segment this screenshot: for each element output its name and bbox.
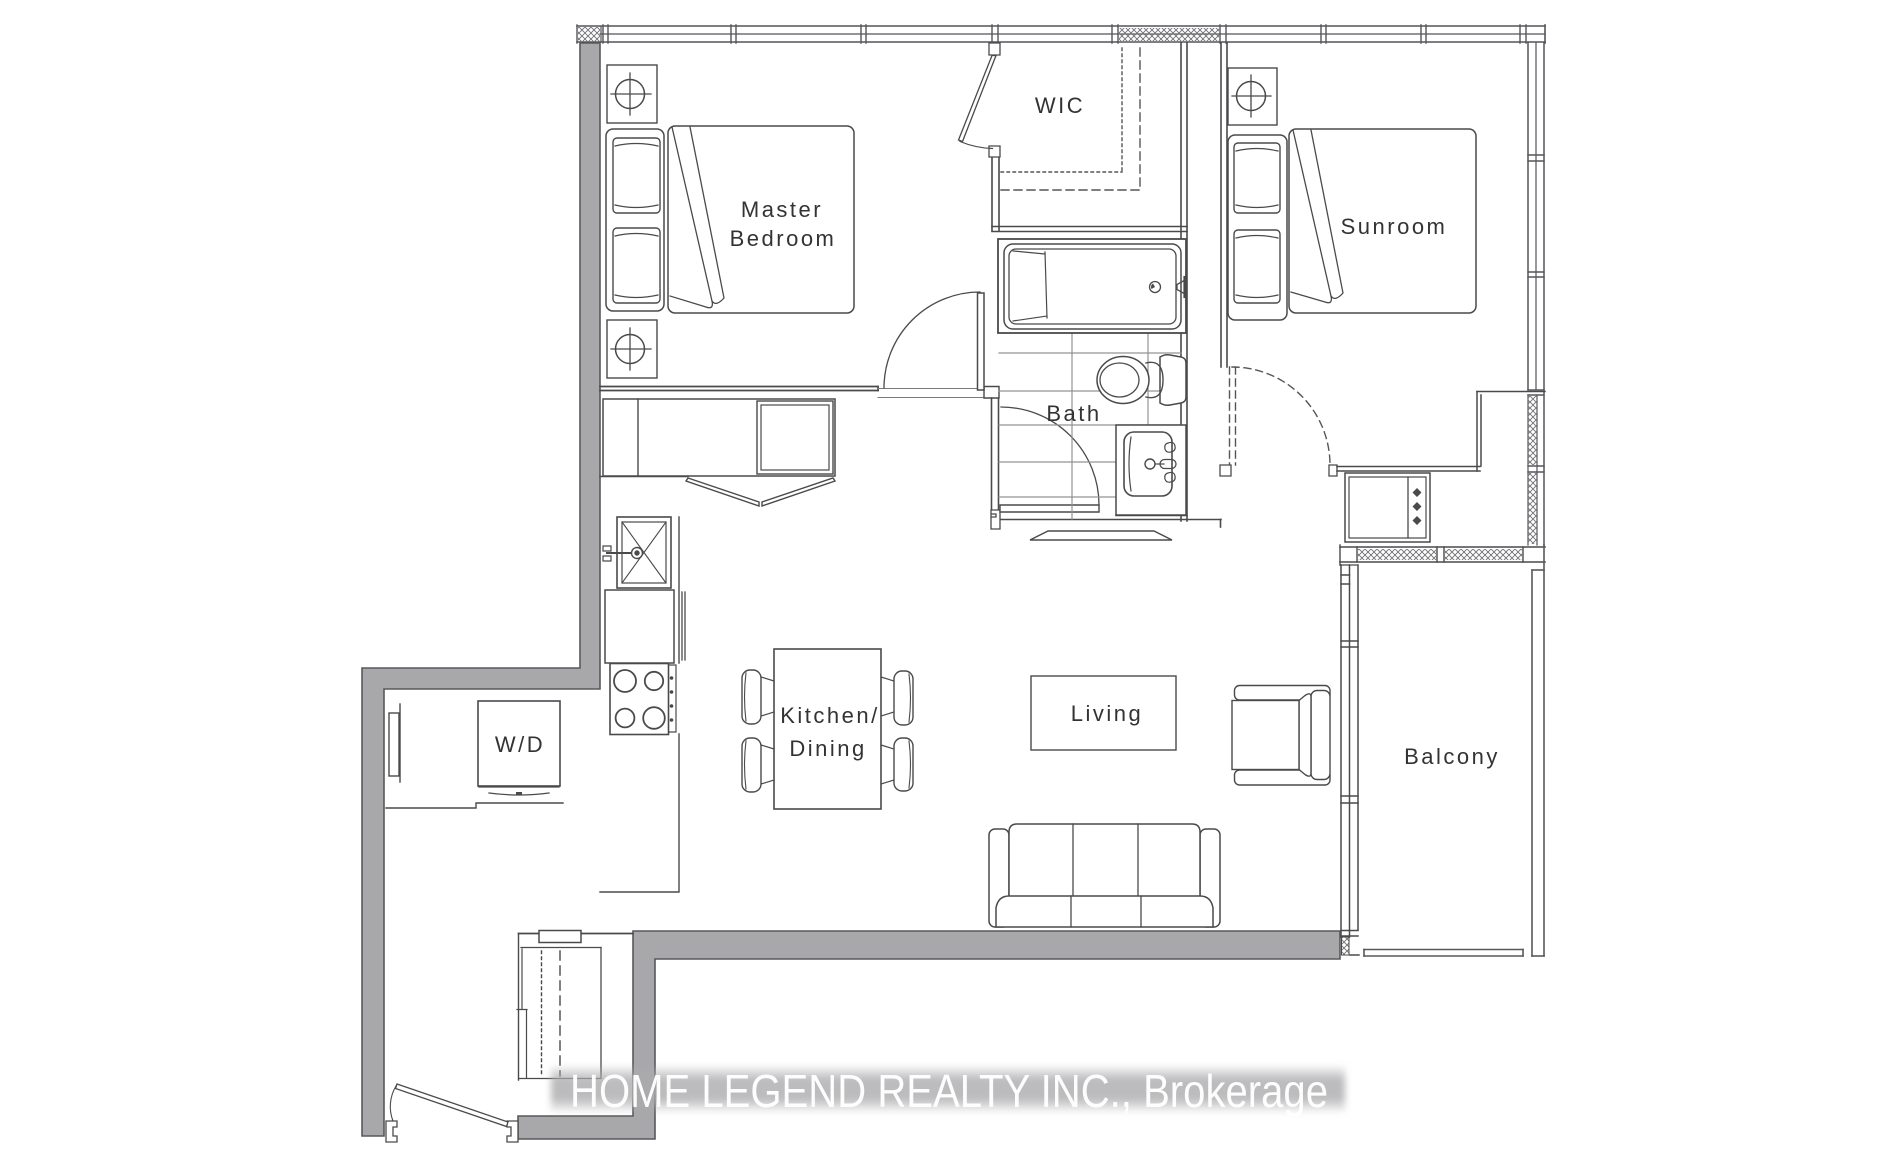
svg-text:HOME LEGEND REALTY INC., Broke: HOME LEGEND REALTY INC., Brokerage (570, 1065, 1328, 1117)
svg-text:Bedroom: Bedroom (730, 226, 837, 251)
svg-text:Sunroom: Sunroom (1341, 214, 1448, 239)
svg-text:Balcony: Balcony (1404, 744, 1500, 769)
svg-text:Bath: Bath (1046, 401, 1101, 426)
svg-text:W/D: W/D (495, 732, 545, 757)
svg-text:Dining: Dining (789, 736, 866, 761)
svg-text:Master: Master (741, 197, 823, 222)
svg-text:Living: Living (1071, 701, 1143, 726)
svg-text:Kitchen/: Kitchen/ (780, 703, 880, 728)
svg-text:WIC: WIC (1035, 93, 1085, 118)
